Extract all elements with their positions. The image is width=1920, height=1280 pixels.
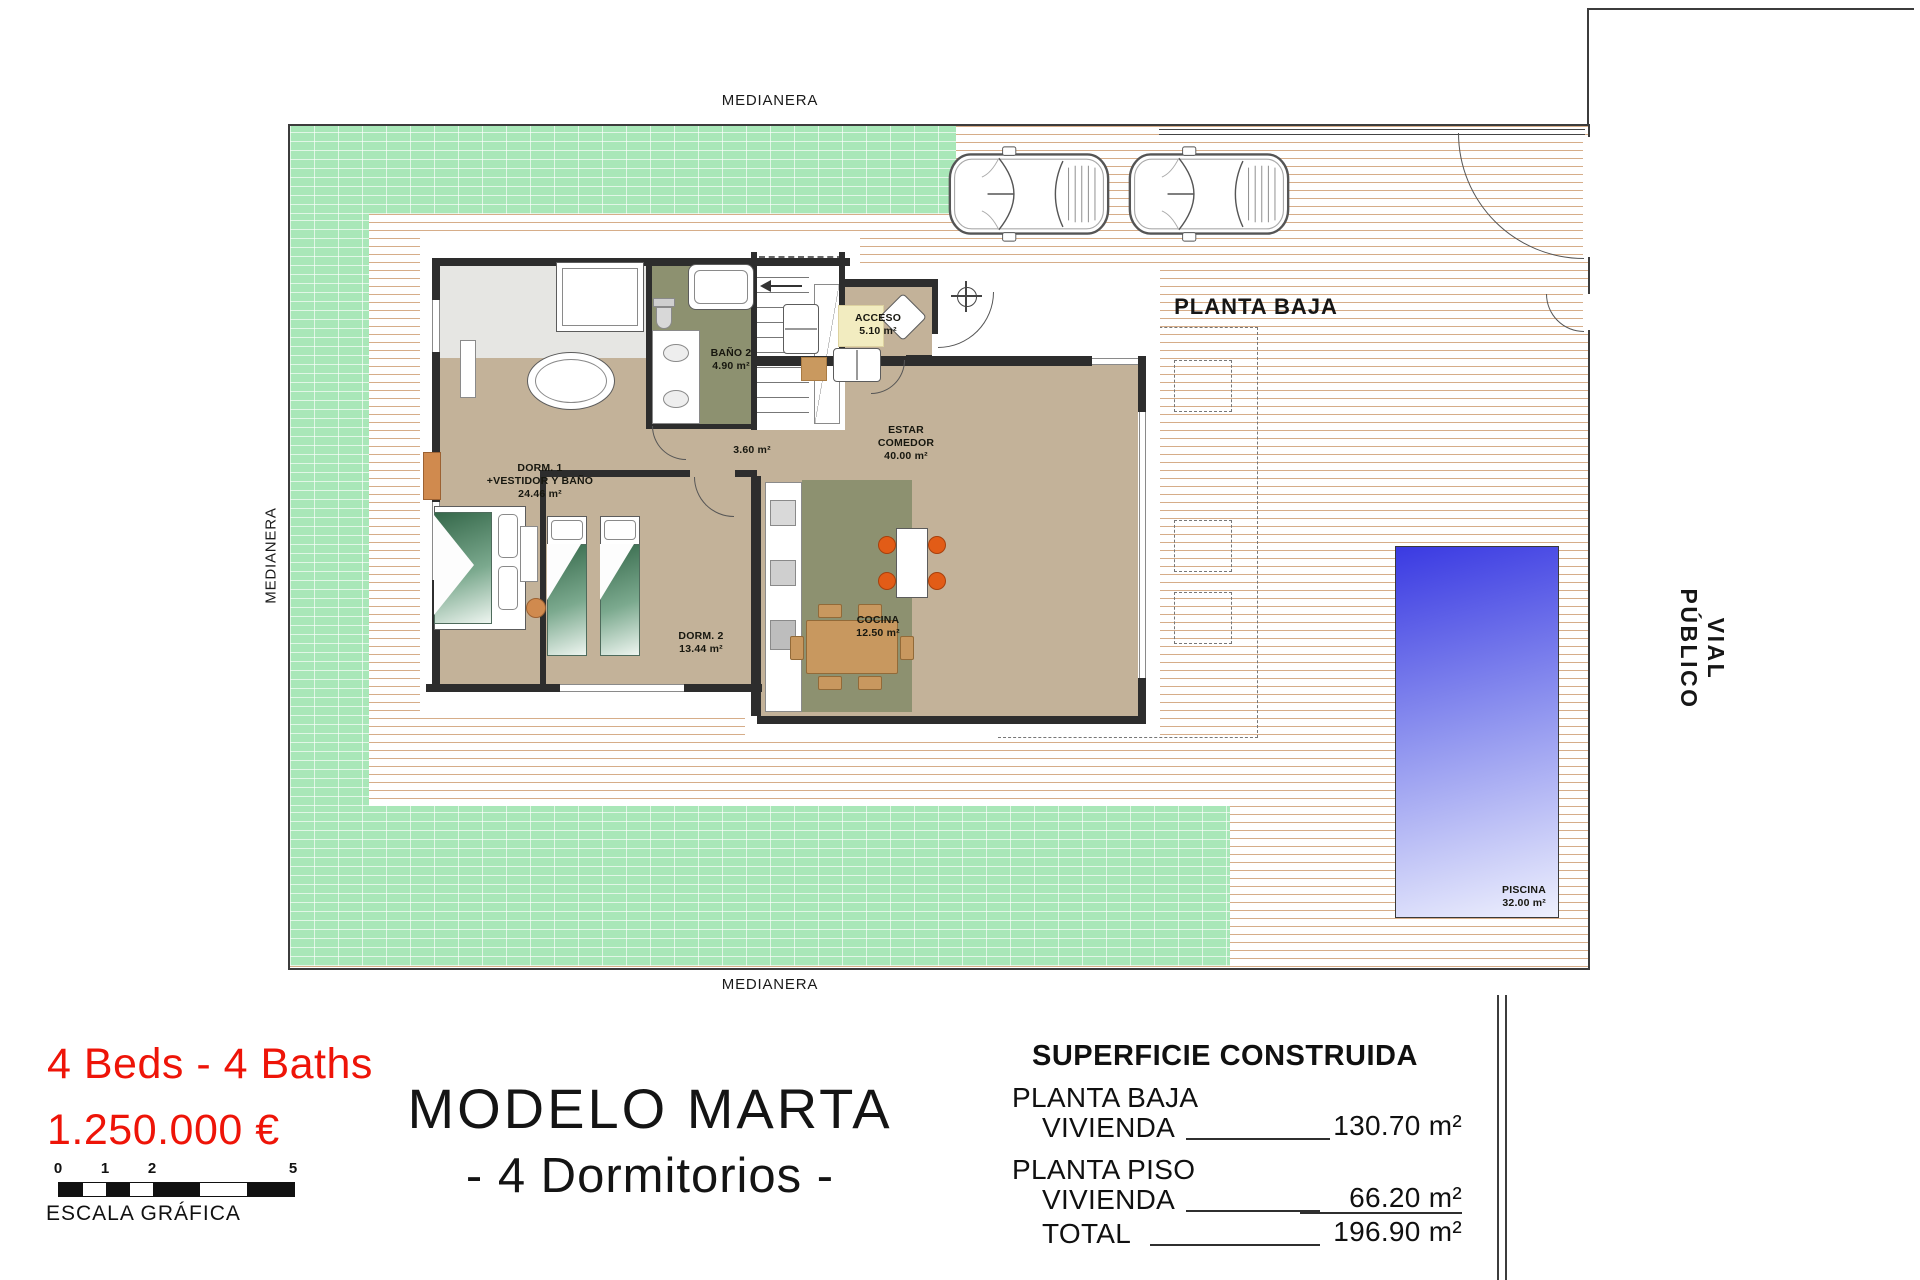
blanket-fold bbox=[600, 544, 634, 600]
label-vial-publico: VIAL PÚBLICO bbox=[1675, 559, 1729, 739]
nightstand bbox=[423, 452, 441, 500]
pillow bbox=[498, 566, 518, 610]
table-row-label: TOTAL bbox=[1042, 1218, 1131, 1250]
bathtub-inner bbox=[694, 270, 748, 304]
blanket-fold bbox=[547, 544, 581, 600]
room-label-acceso: ACCESO5.10 m² bbox=[846, 312, 910, 338]
room-label-dorm2: DORM. 213.44 m² bbox=[668, 630, 734, 656]
leader-line bbox=[1186, 1108, 1330, 1140]
dressing-bench bbox=[460, 340, 476, 398]
pillow bbox=[498, 514, 518, 558]
toilet bbox=[656, 307, 672, 329]
toilet-tank bbox=[653, 298, 675, 307]
label-medianera-top: MEDIANERA bbox=[690, 92, 850, 109]
pergola-column-1 bbox=[1174, 360, 1232, 412]
room-label-estar: ESTARCOMEDOR40.00 m² bbox=[868, 424, 944, 463]
pergola-column-2 bbox=[1174, 520, 1232, 572]
lawn-top bbox=[290, 126, 956, 214]
table-row-label: PLANTA PISO bbox=[1012, 1154, 1195, 1186]
stool bbox=[526, 598, 546, 618]
ceiling-light-cross-h bbox=[951, 295, 982, 297]
wall-segment bbox=[757, 716, 1146, 724]
swimming-pool bbox=[1395, 546, 1559, 918]
wall-segment bbox=[1138, 678, 1146, 724]
table-row-sublabel: VIVIENDA bbox=[1042, 1112, 1175, 1144]
scale-bar-segment bbox=[247, 1183, 294, 1196]
room-label-bano2: BAÑO 24.90 m² bbox=[690, 347, 772, 373]
titleblock-line-2 bbox=[1505, 995, 1507, 1280]
car-top-view bbox=[944, 145, 1114, 243]
table-row-sublabel: VIVIENDA bbox=[1042, 1184, 1175, 1216]
window bbox=[1139, 412, 1146, 678]
scale-caption: ESCALA GRÁFICA bbox=[46, 1202, 241, 1226]
window bbox=[560, 684, 684, 692]
model-subtitle: - 4 Dormitorios - bbox=[360, 1148, 940, 1204]
street-line-vertical bbox=[1587, 8, 1589, 126]
wall-segment bbox=[751, 476, 761, 716]
breakfast-table bbox=[896, 528, 928, 598]
sum-line bbox=[1300, 1212, 1462, 1214]
scale-tick-0: 0 bbox=[49, 1160, 67, 1177]
blanket-fold bbox=[434, 515, 474, 615]
scale-bar-segment bbox=[59, 1183, 83, 1196]
leader-line bbox=[1150, 1214, 1320, 1246]
leader-line bbox=[1186, 1180, 1320, 1212]
shower-closet-inner bbox=[562, 268, 638, 326]
label-medianera-left: MEDIANERA bbox=[263, 471, 280, 641]
scale-bar bbox=[58, 1182, 295, 1197]
orange-chair bbox=[928, 572, 946, 590]
ottoman bbox=[801, 357, 827, 381]
sofa-cushion-line bbox=[856, 350, 858, 380]
label-planta-baja: PLANTA BAJA bbox=[1150, 294, 1362, 320]
room-label-hall: 3.60 m² bbox=[724, 444, 780, 457]
pillow bbox=[604, 520, 636, 540]
pillow bbox=[551, 520, 583, 540]
titleblock-line-1 bbox=[1497, 995, 1499, 1280]
freestanding-tub-inner bbox=[535, 359, 607, 403]
scale-bar-segment bbox=[106, 1183, 130, 1196]
wall-segment bbox=[540, 477, 546, 690]
car-top-view bbox=[1124, 145, 1294, 243]
gate-opening bbox=[1583, 137, 1591, 257]
dining-chair bbox=[818, 676, 842, 690]
kitchen-sink bbox=[770, 500, 796, 526]
dining-chair bbox=[858, 676, 882, 690]
stair-direction-line bbox=[770, 285, 802, 287]
pedestrian-opening bbox=[1583, 294, 1591, 330]
model-title: MODELO MARTA bbox=[360, 1076, 940, 1141]
table-row-value: 130.70 m² bbox=[1330, 1110, 1462, 1142]
nightstand bbox=[520, 526, 538, 582]
kitchen-hob bbox=[770, 560, 796, 586]
table-row-value: 66.20 m² bbox=[1330, 1182, 1462, 1214]
dining-chair bbox=[818, 604, 842, 618]
orange-chair bbox=[878, 572, 896, 590]
sofa-cushion-line bbox=[785, 328, 817, 330]
room-label-dorm1: DORM. 1+VESTIDOR Y BAÑO24.46 m² bbox=[470, 462, 610, 501]
orange-chair bbox=[878, 536, 896, 554]
window bbox=[1092, 358, 1138, 365]
scale-tick-1: 1 bbox=[96, 1160, 114, 1177]
table-title: SUPERFICIE CONSTRUIDA bbox=[1032, 1040, 1418, 1073]
pergola-column-3 bbox=[1174, 592, 1232, 644]
dining-chair bbox=[790, 636, 804, 660]
wall-segment bbox=[432, 258, 440, 300]
wall-segment bbox=[1138, 356, 1146, 412]
ceiling-light-icon bbox=[957, 287, 977, 307]
plan-sheet: PISCINA32.00 m² bbox=[0, 0, 1920, 1280]
wall-segment bbox=[845, 279, 938, 287]
washbasin bbox=[663, 390, 689, 408]
street-line-top bbox=[1587, 8, 1914, 10]
lawn-left bbox=[290, 214, 369, 806]
wall-segment bbox=[906, 355, 932, 362]
room-label-piscina: PISCINA32.00 m² bbox=[1420, 884, 1554, 910]
scale-bar-segment bbox=[153, 1183, 200, 1196]
lawn-bottom bbox=[290, 806, 1230, 966]
table-row-label: PLANTA BAJA bbox=[1012, 1082, 1198, 1114]
washbasin bbox=[663, 344, 689, 362]
scale-tick-5: 5 bbox=[284, 1160, 302, 1177]
scale-tick-2: 2 bbox=[143, 1160, 161, 1177]
orange-chair bbox=[928, 536, 946, 554]
label-medianera-bottom: MEDIANERA bbox=[690, 976, 850, 993]
room-label-cocina: COCINA12.50 m² bbox=[846, 614, 910, 640]
window bbox=[432, 300, 440, 352]
table-row-value: 196.90 m² bbox=[1330, 1216, 1462, 1248]
